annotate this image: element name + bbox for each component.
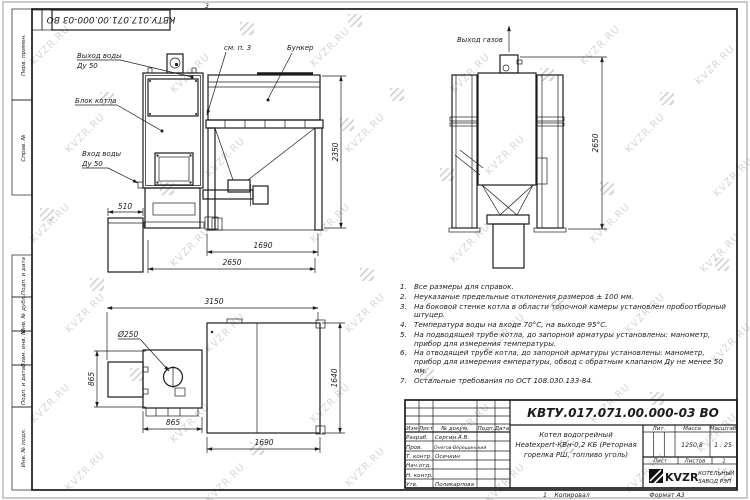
tb-name-line3: горелка РШ, топливо уголь) xyxy=(524,451,628,459)
note-item: 5.На подводящей трубе котла, до запорной… xyxy=(394,331,728,349)
note-item: 2.Неуказаные предельные отклонения разме… xyxy=(394,293,728,302)
tb-mass-value: 1250,8 xyxy=(681,442,703,449)
tb-role-5: Утв. xyxy=(406,482,418,488)
label-blok-kotla: Блок котла xyxy=(75,97,116,105)
tb-scale-value: 1 : 25 xyxy=(714,442,732,449)
label-vyhod-gazov: Выход газов xyxy=(457,36,503,44)
tb-name-2: Осечкин xyxy=(435,454,460,460)
dim-3150: 3150 xyxy=(204,297,223,306)
margin-vzam: Взам. инв. № xyxy=(21,329,27,367)
tb-col-data: Дата xyxy=(494,426,510,432)
footer-copied: Копировал xyxy=(554,492,589,499)
margin-podp2: Подп. и дата xyxy=(21,366,27,405)
note-item: 4.Температура воды на входе 70°С, на вых… xyxy=(394,321,728,330)
front-view-boiler: 510 xyxy=(108,54,218,272)
note-item: 1.Все размеры для справок. xyxy=(394,283,728,292)
label-vyhod-vody: Выход воды xyxy=(77,52,122,60)
callout-labels: Выход воды Ду 50 Блок котла Вход воды Ду… xyxy=(75,36,503,183)
tb-name-1: Онегов-Верещинский xyxy=(434,445,486,451)
margin-podp1: Подп. и дата xyxy=(21,256,27,295)
dim-1640: 1640 xyxy=(330,368,339,387)
rear-view: 2650 xyxy=(449,26,607,268)
sheet-edge xyxy=(3,2,747,498)
note-item: 3.На боковой стенке котла в области топо… xyxy=(394,303,728,321)
note-item: 7.Остальные требования по ОСТ 108.030.13… xyxy=(394,377,728,386)
tb-company-2: ЗАВОД РЭП xyxy=(698,479,732,485)
tb-col-dokum: № докум. xyxy=(440,426,469,432)
tb-name-0: Сергин А.В. xyxy=(435,435,469,441)
margin-inv-dubl: Инв. № дубл. xyxy=(21,295,27,333)
dim-1690-side: 1690 xyxy=(253,241,272,250)
label-bunker: Бункер xyxy=(287,44,314,52)
margin-inv-podl: Инв. № подл. xyxy=(21,428,27,467)
tb-mass-label: Масса xyxy=(683,426,701,432)
tb-name-5: Поликарпова xyxy=(435,482,475,488)
tb-col-podp: Подп. xyxy=(478,426,495,432)
label-du50-out: Ду 50 xyxy=(76,62,98,70)
tb-col-list: Лист xyxy=(418,426,434,432)
tb-company-1: КОТЕЛЬНЫЙ xyxy=(698,470,735,477)
tb-name-line1: Котел водогрейный xyxy=(539,431,613,439)
kvzr-logo: KVZR xyxy=(649,469,699,484)
kvzr-logo-text: KVZR xyxy=(665,471,699,484)
top-stamp: КВТУ.017.071.00.000-03 ВО xyxy=(32,10,175,30)
tb-name-line2: Heatexpert-КВн-0,2 КБ (Реторная xyxy=(515,441,636,449)
tb-col-izm: Изм xyxy=(406,426,418,432)
tb-sheets-value: 1 xyxy=(722,459,726,465)
footer-format: Формат А3 xyxy=(649,492,684,499)
tb-role-2: Т. контр. xyxy=(406,454,432,460)
notes-list: 1.Все размеры для справок.2.Неуказаные п… xyxy=(394,283,728,387)
footer-sheet-num: 1 xyxy=(543,492,547,499)
label-vhod-vody: Вход воды xyxy=(82,150,122,158)
dim-2650-rear: 2650 xyxy=(591,133,600,152)
tb-scale-label: Масштаб xyxy=(710,426,737,432)
label-sm-p3: см. п. 3 xyxy=(224,44,251,52)
tb-sheet-label: Лист xyxy=(652,459,668,465)
dim-510: 510 xyxy=(118,202,133,211)
top-view: 3150 865 865 1640 1690 Ø250 xyxy=(87,297,345,453)
dim-2350: 2350 xyxy=(331,142,340,161)
tb-role-1: Пров. xyxy=(406,445,422,451)
drawing-sheet: KVZR.RUKVZR.RUKVZR.RUKVZR.RUKVZR.RUKVZR.… xyxy=(0,0,750,500)
label-du50-in: Ду 50 xyxy=(81,160,103,168)
dim-250: Ø250 xyxy=(117,330,138,339)
side-view-hopper: 2350 1690 2650 xyxy=(148,74,346,274)
zone-marker: 3 xyxy=(205,3,209,10)
note-item: 6.На отводящей трубе котла, до запорной … xyxy=(394,349,728,375)
tb-role-3: Нач.отд. xyxy=(406,463,431,469)
dim-865-bottom: 865 xyxy=(166,418,181,427)
title-block: Изм Лист № докум. Подп. Дата Разраб. Сер… xyxy=(405,400,737,488)
stamp-designation: КВТУ.017.071.00.000-03 ВО xyxy=(47,14,176,24)
margin-perv: Перв. примен. xyxy=(21,34,27,76)
margin-cells: Перв. примен. Справ. № Подп. и дата Инв.… xyxy=(12,9,32,490)
tb-sheets-label: Листов xyxy=(684,459,706,465)
tb-role-0: Разраб. xyxy=(406,435,428,441)
dim-1690-top: 1690 xyxy=(254,438,273,447)
engineering-drawing: 3 КВТУ.017.071.00.000-03 ВО Перв. примен… xyxy=(0,0,750,500)
margin-sprav: Справ. № xyxy=(21,134,27,161)
dim-865-left: 865 xyxy=(87,372,96,387)
tb-designation: КВТУ.017.071.00.000-03 ВО xyxy=(527,406,719,420)
tb-role-4: Н. контр. xyxy=(406,473,433,479)
dim-2650-side: 2650 xyxy=(222,258,241,267)
tb-lit-label: Лит. xyxy=(652,426,666,432)
